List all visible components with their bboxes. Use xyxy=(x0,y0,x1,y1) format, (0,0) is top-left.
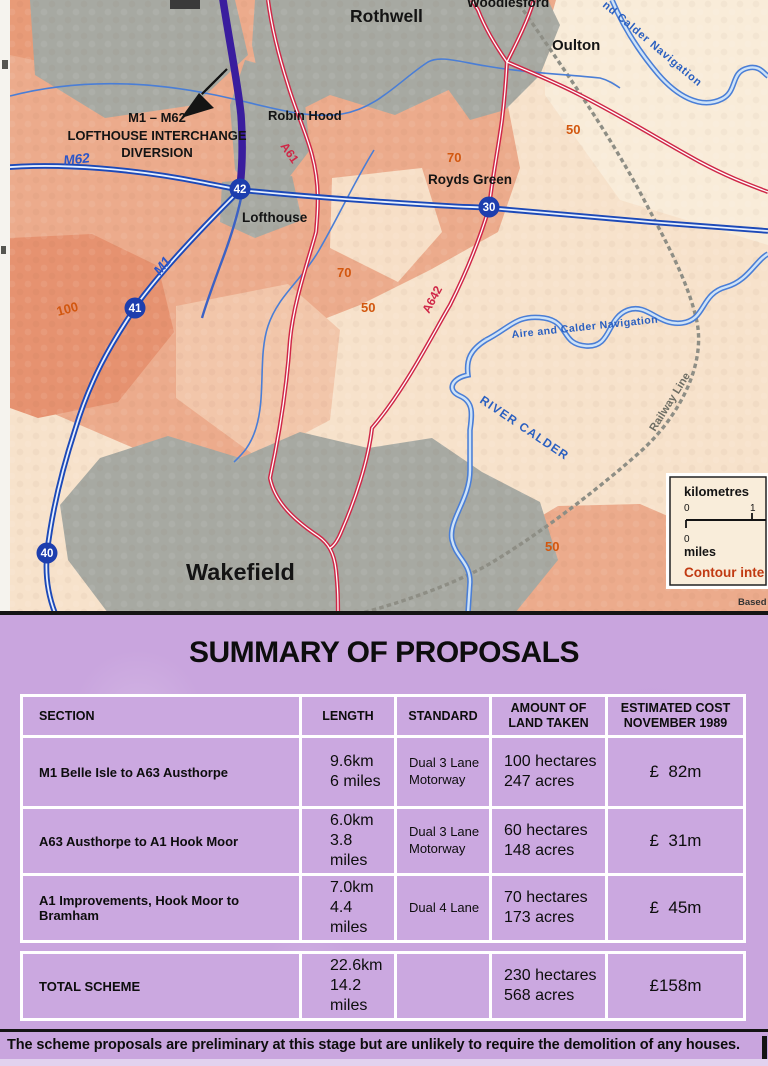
junction-42-number: 42 xyxy=(234,184,247,196)
map-section: 42 30 41 40 M1 xyxy=(0,0,768,615)
scan-speck-2 xyxy=(1,246,6,254)
table-row-1-length: 9.6km 6 miles xyxy=(302,738,394,806)
scale-km-one: 1 xyxy=(750,503,756,514)
table-row-2-section: A63 Austhorpe to A1 Hook Moor xyxy=(23,809,299,873)
table-row-3-length: 7.0km 4.4 miles xyxy=(302,876,394,940)
junction-40-number: 40 xyxy=(41,548,54,560)
scan-bottom-edge xyxy=(0,1059,768,1066)
table-row-2-length: 6.0km 3.8 miles xyxy=(302,809,394,873)
table-row-1-standard: Dual 3 Lane Motorway xyxy=(397,738,489,806)
proposals-table: SECTION LENGTH STANDARD AMOUNT OF LAND T… xyxy=(20,694,746,943)
scan-speck-1 xyxy=(2,60,8,69)
annotation-line1: M1 – M62 xyxy=(128,110,186,125)
col-header-cost: ESTIMATED COST NOVEMBER 1989 xyxy=(608,697,743,735)
col-header-land: AMOUNT OF LAND TAKEN xyxy=(492,697,605,735)
scale-miles-label: miles xyxy=(684,545,716,559)
place-label-lofthouse: Lofthouse xyxy=(242,210,308,225)
annotation-line2: LOFTHOUSE INTERCHANGE xyxy=(67,128,246,143)
table-row-3-standard: Dual 4 Lane xyxy=(397,876,489,940)
total-scheme-table: TOTAL SCHEME 22.6km 14.2 miles 230 hecta… xyxy=(20,951,746,1021)
contour-label-70-upper: 70 xyxy=(447,150,461,165)
contour-label-50-mid: 50 xyxy=(361,300,375,315)
scan-texture xyxy=(0,0,768,615)
annotation-line3: DIVERSION xyxy=(121,145,193,160)
total-row-length: 22.6km 14.2 miles xyxy=(302,954,394,1018)
scan-margin-left xyxy=(0,0,10,611)
footnote-bar: The scheme proposals are preliminary at … xyxy=(0,1029,768,1057)
place-label-royds-green: Royds Green xyxy=(428,172,512,187)
col-header-length: LENGTH xyxy=(302,697,394,735)
total-row-land: 230 hectares 568 acres xyxy=(492,954,605,1018)
place-label-oulton: Oulton xyxy=(552,37,600,54)
total-row-section: TOTAL SCHEME xyxy=(23,954,299,1018)
place-label-woodlesford: Woodlesford xyxy=(467,0,549,10)
col-header-standard: STANDARD xyxy=(397,697,489,735)
table-row-1-land: 100 hectares 247 acres xyxy=(492,738,605,806)
table-row-1-cost: £ 82m xyxy=(608,738,743,806)
table-row-3-section: A1 Improvements, Hook Moor to Bramham xyxy=(23,876,299,940)
table-row-3-land: 70 hectares 173 acres xyxy=(492,876,605,940)
junction-30-number: 30 xyxy=(483,202,496,214)
junction-41-number: 41 xyxy=(129,303,142,315)
map-credit: Based xyxy=(738,597,767,608)
scale-km-zero: 0 xyxy=(684,503,690,514)
scan-artifact-top xyxy=(170,0,200,9)
road-label-m62: M62 xyxy=(63,150,91,168)
total-row-standard xyxy=(397,954,489,1018)
footnote-text: The scheme proposals are preliminary at … xyxy=(7,1037,740,1053)
page: 42 30 41 40 M1 xyxy=(0,0,768,1066)
summary-title: SUMMARY OF PROPOSALS xyxy=(0,615,768,670)
proposal-map: 42 30 41 40 M1 xyxy=(0,0,768,615)
col-header-section: SECTION xyxy=(23,697,299,735)
table-row-2-standard: Dual 3 Lane Motorway xyxy=(397,809,489,873)
contour-label-70-mid: 70 xyxy=(337,265,351,280)
contour-label-50-lower: 50 xyxy=(545,539,559,554)
place-label-rothwell: Rothwell xyxy=(350,6,423,26)
scale-kilometres-label: kilometres xyxy=(684,484,749,499)
table-row-2-cost: £ 31m xyxy=(608,809,743,873)
table-row-2-land: 60 hectares 148 acres xyxy=(492,809,605,873)
total-row-cost: £158m xyxy=(608,954,743,1018)
table-row-1-section: M1 Belle Isle to A63 Austhorpe xyxy=(23,738,299,806)
scale-box: kilometres 0 1 0 miles Contour inte xyxy=(666,473,768,589)
scale-miles-zero: 0 xyxy=(684,534,690,545)
place-label-robin-hood: Robin Hood xyxy=(268,108,342,123)
contour-label-50-upper: 50 xyxy=(566,122,580,137)
table-row-3-cost: £ 45m xyxy=(608,876,743,940)
place-label-wakefield: Wakefield xyxy=(186,559,295,585)
scan-edge-mark xyxy=(762,1036,767,1060)
summary-section: SUMMARY OF PROPOSALS SECTION LENGTH STAN… xyxy=(0,615,768,1066)
contour-interval-note: Contour inte xyxy=(684,565,765,580)
